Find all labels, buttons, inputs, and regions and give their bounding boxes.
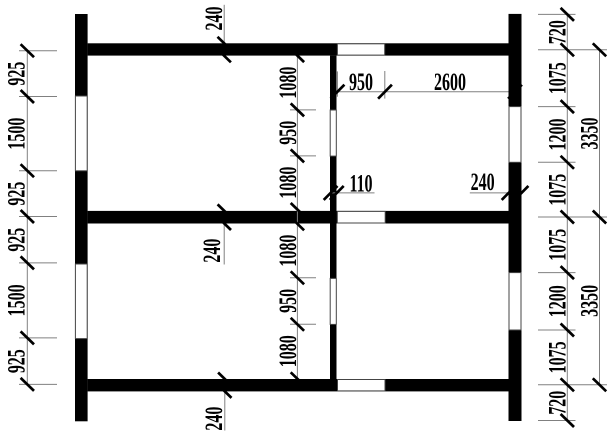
svg-text:1075: 1075	[543, 229, 572, 261]
svg-text:950: 950	[273, 121, 302, 145]
svg-text:110: 110	[349, 169, 372, 198]
svg-text:1080: 1080	[273, 167, 302, 199]
svg-text:1080: 1080	[273, 335, 302, 367]
svg-text:240: 240	[197, 239, 226, 263]
svg-text:1075: 1075	[543, 62, 572, 94]
svg-text:240: 240	[199, 7, 228, 31]
svg-text:2600: 2600	[434, 67, 466, 96]
svg-text:1075: 1075	[543, 174, 572, 206]
svg-text:1500: 1500	[2, 118, 31, 150]
svg-text:925: 925	[2, 349, 31, 373]
svg-text:720: 720	[543, 391, 572, 415]
svg-text:950: 950	[349, 67, 373, 96]
svg-text:720: 720	[543, 20, 572, 44]
svg-text:3350: 3350	[575, 118, 604, 150]
svg-text:240: 240	[199, 407, 228, 431]
svg-text:950: 950	[273, 289, 302, 313]
svg-text:925: 925	[2, 182, 31, 206]
svg-text:240: 240	[471, 167, 495, 196]
svg-text:925: 925	[2, 62, 31, 86]
svg-text:1080: 1080	[273, 67, 302, 99]
svg-text:1200: 1200	[543, 119, 572, 151]
svg-text:925: 925	[2, 228, 31, 252]
svg-text:3350: 3350	[575, 285, 604, 317]
svg-text:1200: 1200	[543, 285, 572, 317]
svg-text:1075: 1075	[543, 341, 572, 373]
svg-text:1500: 1500	[2, 284, 31, 316]
svg-text:1080: 1080	[273, 235, 302, 267]
